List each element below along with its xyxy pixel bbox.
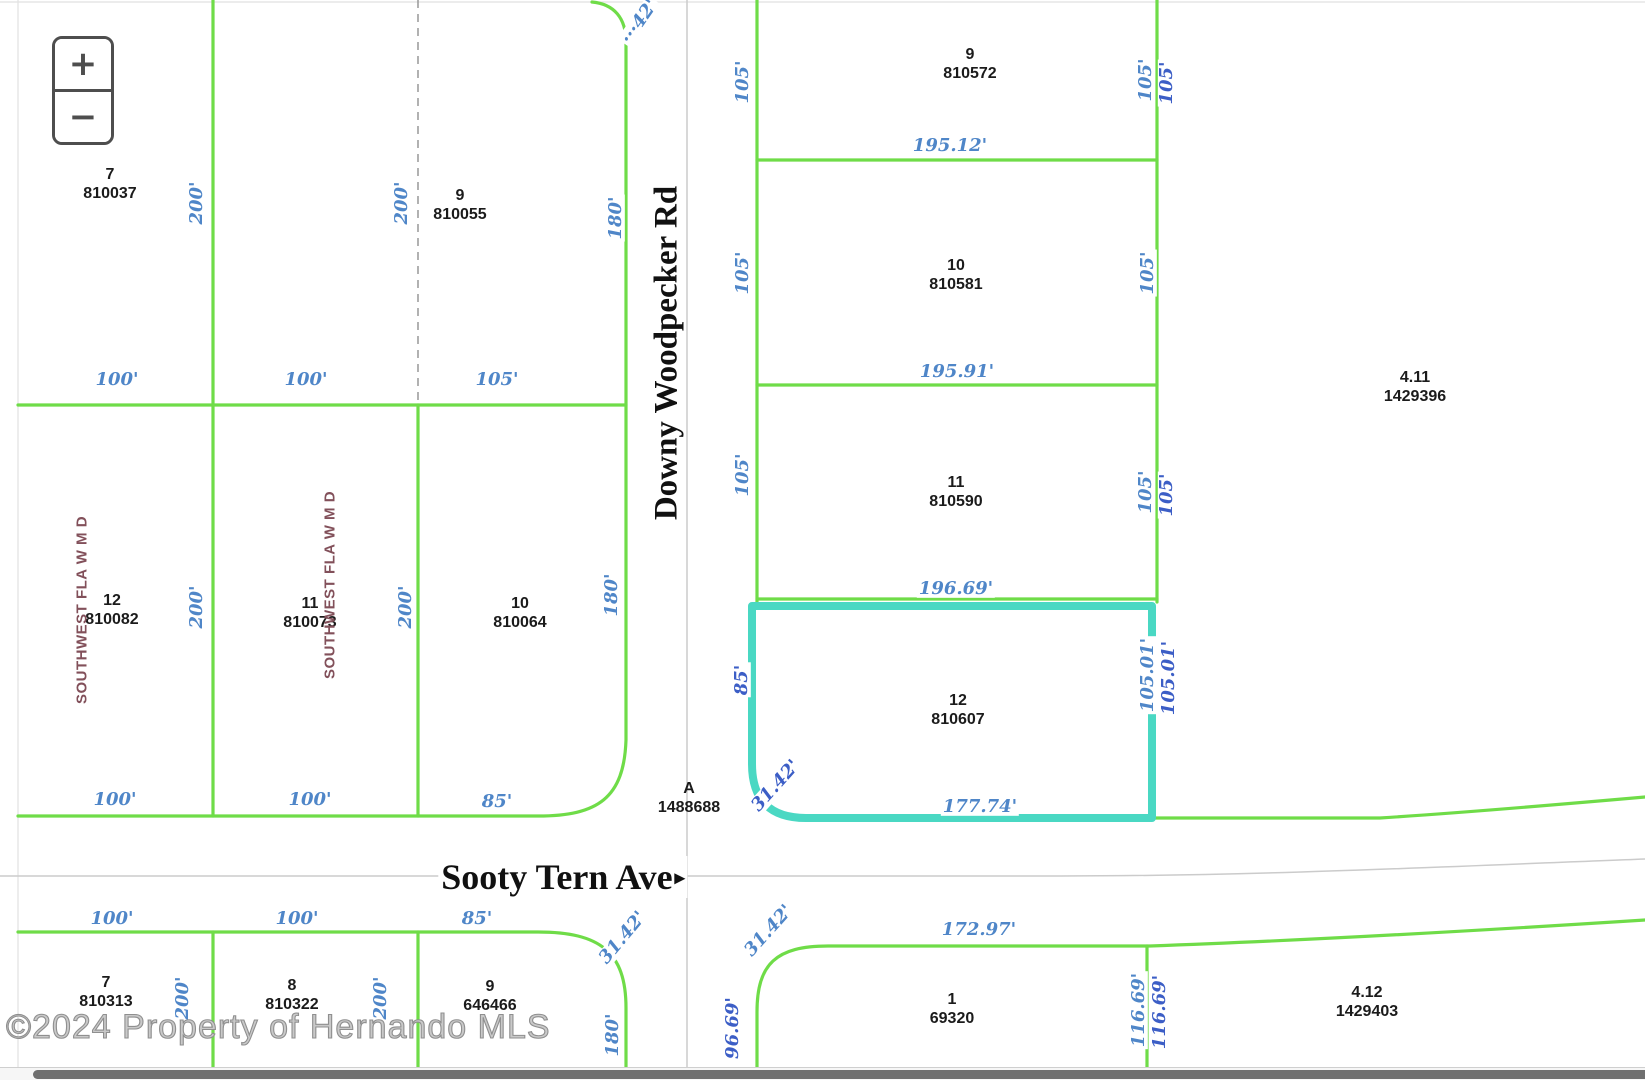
parcel-lot-number: 7	[83, 165, 136, 184]
parcel-lot-number: 12	[85, 591, 138, 610]
map-canvas[interactable]: 200'200'180'100'100'105'200'200'180'100'…	[0, 0, 1645, 1080]
road-name-text: Downy Woodpecker Rd	[649, 186, 686, 520]
parcel-lot-number: 7	[79, 973, 132, 992]
dimension-label: 85'	[460, 910, 495, 928]
parcel-label: 169320	[930, 990, 975, 1028]
dimension-label: 200'	[393, 179, 411, 226]
dimension-label: 105'	[1137, 468, 1155, 515]
dimension-label: 195.91'	[918, 363, 996, 381]
dimension-label: 100'	[282, 371, 329, 389]
dimension-label: 105'	[1158, 59, 1176, 106]
dimension-label: 100'	[91, 791, 138, 809]
parcel-id: 810082	[85, 610, 138, 629]
parcel-lot-number: 9	[433, 186, 486, 205]
parcel-label: 12810607	[931, 691, 984, 729]
dimension-label: 172.97'	[940, 921, 1018, 939]
parcel-label: 10810581	[929, 256, 982, 294]
road-name-label: Downy Woodpecker Rd	[649, 183, 686, 523]
parcel-label: 12810082	[85, 591, 138, 629]
dimension-label: 180'	[607, 194, 625, 241]
parcel-id: 1429396	[1384, 387, 1446, 406]
road-name-label: Sooty Tern Ave▸	[438, 856, 687, 898]
zoom-in-button[interactable]: +	[55, 39, 111, 92]
dimension-label: 85'	[480, 793, 515, 811]
parcel-lot-number: A	[658, 779, 720, 798]
dimension-label: 180'	[604, 1011, 622, 1058]
dimension-label: 100'	[273, 910, 320, 928]
parcel-line	[757, 920, 1645, 1072]
dimension-label: 100'	[88, 910, 135, 928]
road-name-text: Sooty Tern Ave	[441, 856, 672, 898]
parcel-id: 810581	[929, 275, 982, 294]
parcel-line	[1152, 797, 1645, 818]
dimension-label: 116.69'	[1130, 971, 1148, 1049]
parcel-id: 810607	[931, 710, 984, 729]
parcel-lot-number: 11	[929, 473, 982, 492]
dimension-label: 105'	[734, 249, 752, 296]
dimension-label: 200'	[397, 583, 415, 630]
parcel-id: 810055	[433, 205, 486, 224]
parcel-lot-number: 8	[265, 976, 318, 995]
dimension-label: 85'	[733, 663, 751, 698]
dimension-label: 195.12'	[911, 137, 989, 155]
dimension-label: 105'	[734, 58, 752, 105]
dimension-label: 196.69'	[917, 580, 995, 598]
water-district-label: SOUTHWEST FLA W M D	[322, 491, 339, 679]
dimension-label: 105'	[734, 451, 752, 498]
water-district-label: SOUTHWEST FLA W M D	[74, 516, 91, 704]
zoom-out-button[interactable]: −	[55, 92, 111, 142]
parcel-lot-number: 9	[943, 45, 996, 64]
parcel-id: 1429403	[1336, 1002, 1398, 1021]
parcel-label: 7810313	[79, 973, 132, 1011]
parcel-id: 810572	[943, 64, 996, 83]
parcel-id: 69320	[930, 1009, 975, 1028]
dimension-label: 105'	[1158, 471, 1176, 518]
parcel-id: 810064	[493, 613, 546, 632]
parcel-label: 11810590	[929, 473, 982, 511]
parcel-id: 810590	[929, 492, 982, 511]
dimension-label: 100'	[286, 791, 333, 809]
dimension-label: 105'	[473, 371, 520, 389]
parcel-lot-number: 4.12	[1336, 983, 1398, 1002]
parcel-label: 4.111429396	[1384, 368, 1446, 406]
parcel-label: 7810037	[83, 165, 136, 203]
road-direction-arrow-icon: ▸	[675, 865, 685, 890]
dimension-label: 116.69'	[1151, 973, 1169, 1051]
parcel-id: 1488688	[658, 798, 720, 817]
dimension-label: 177.74'	[941, 798, 1019, 816]
parcel-label: 9810572	[943, 45, 996, 83]
horizontal-scrollbar[interactable]	[0, 1067, 1645, 1080]
dimension-label: 105.01'	[1139, 636, 1157, 714]
parcel-lot-number: 10	[493, 594, 546, 613]
parcel-lot-number: 10	[929, 256, 982, 275]
sooty-tern-ave-centerline	[0, 859, 1645, 876]
parcel-boundary-lines	[0, 0, 1645, 1080]
parcel-label: 4.121429403	[1336, 983, 1398, 1021]
parcel-lot-number: 9	[463, 977, 516, 996]
zoom-control: + −	[52, 36, 114, 145]
parcel-lot-number: 12	[931, 691, 984, 710]
dimension-label: 105.01'	[1160, 639, 1178, 717]
parcel-label: A1488688	[658, 779, 720, 817]
parcel-label: 9810055	[433, 186, 486, 224]
horizontal-scrollbar-thumb[interactable]	[33, 1070, 1645, 1079]
dimension-label: 100'	[93, 371, 140, 389]
parcel-label: 10810064	[493, 594, 546, 632]
mls-watermark: ©2024 Property of Hernando MLS	[6, 1008, 551, 1047]
dimension-label: 180'	[603, 571, 621, 618]
parcel-lot-number: 4.11	[1384, 368, 1446, 387]
dimension-label: 105'	[1139, 249, 1157, 296]
dimension-label: 200'	[188, 179, 206, 226]
parcel-id: 810037	[83, 184, 136, 203]
parcel-lot-number: 1	[930, 990, 975, 1009]
dimension-label: 96.69'	[724, 995, 742, 1061]
dimension-label: 200'	[188, 583, 206, 630]
dimension-label: 105'	[1137, 56, 1155, 103]
